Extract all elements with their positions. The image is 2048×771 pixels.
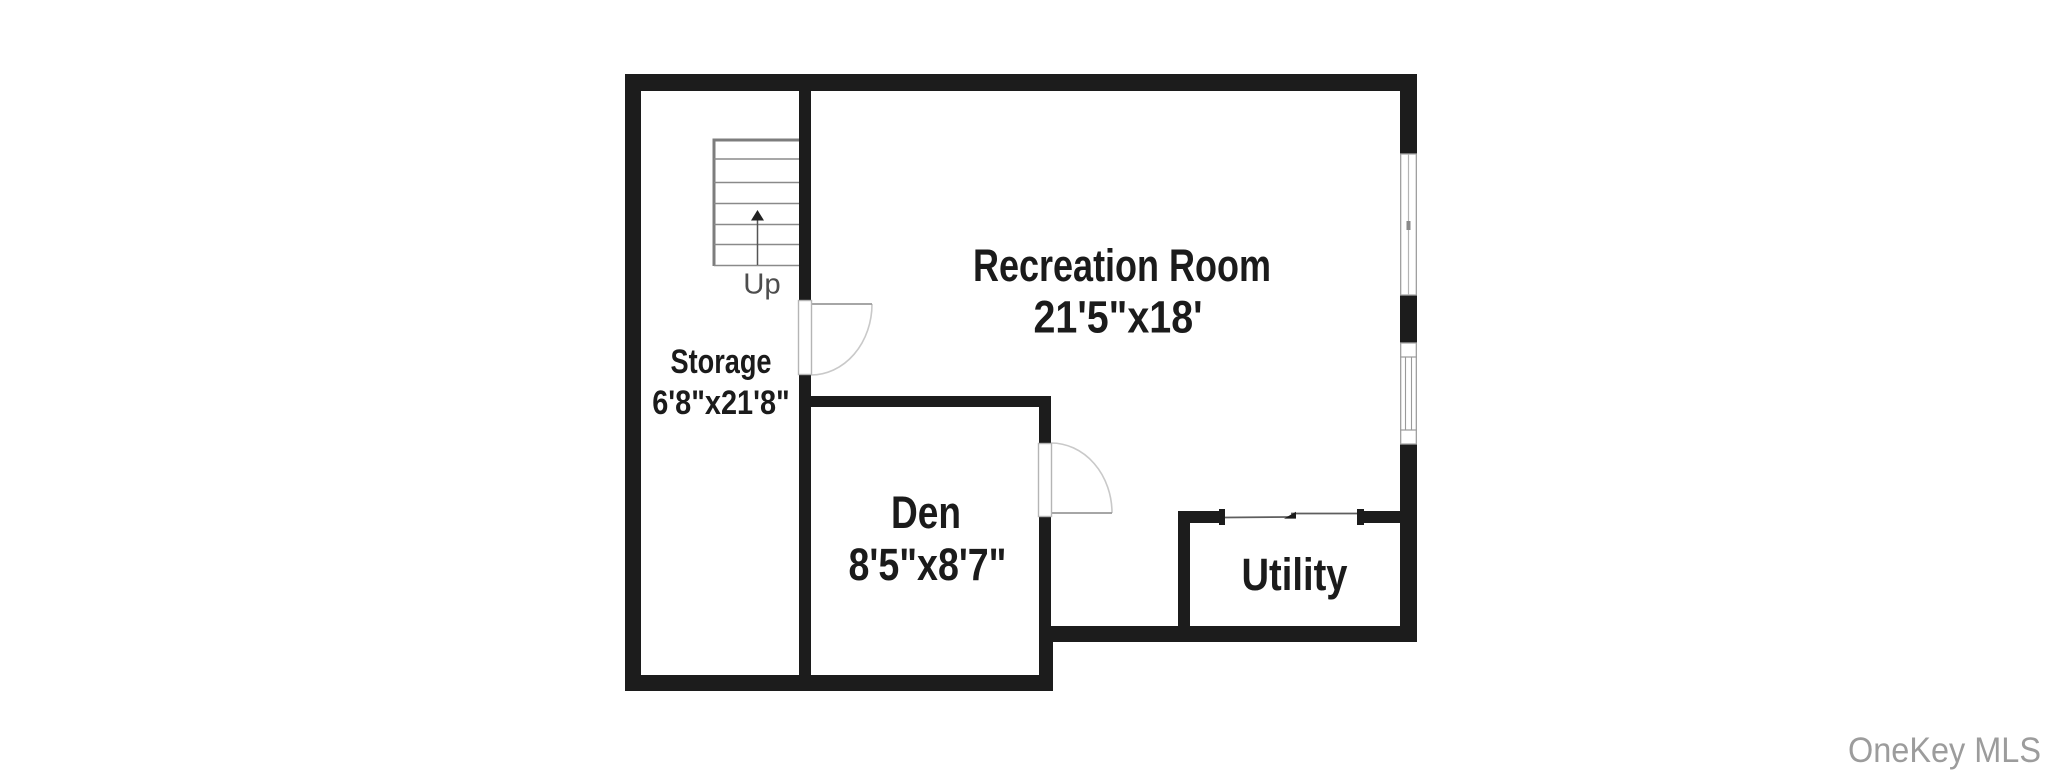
svg-text:Recreation Room: Recreation Room (973, 240, 1271, 291)
svg-text:8'5"x8'7": 8'5"x8'7" (849, 539, 1007, 590)
svg-text:Storage: Storage (671, 343, 772, 381)
svg-text:6'8"x21'8": 6'8"x21'8" (652, 384, 790, 422)
svg-text:Utility: Utility (1242, 549, 1348, 600)
svg-text:Up: Up (743, 269, 781, 301)
svg-text:Den: Den (891, 487, 961, 538)
svg-text:OneKey MLS: OneKey MLS (1848, 731, 2041, 770)
svg-text:21'5"x18': 21'5"x18' (1034, 292, 1203, 343)
